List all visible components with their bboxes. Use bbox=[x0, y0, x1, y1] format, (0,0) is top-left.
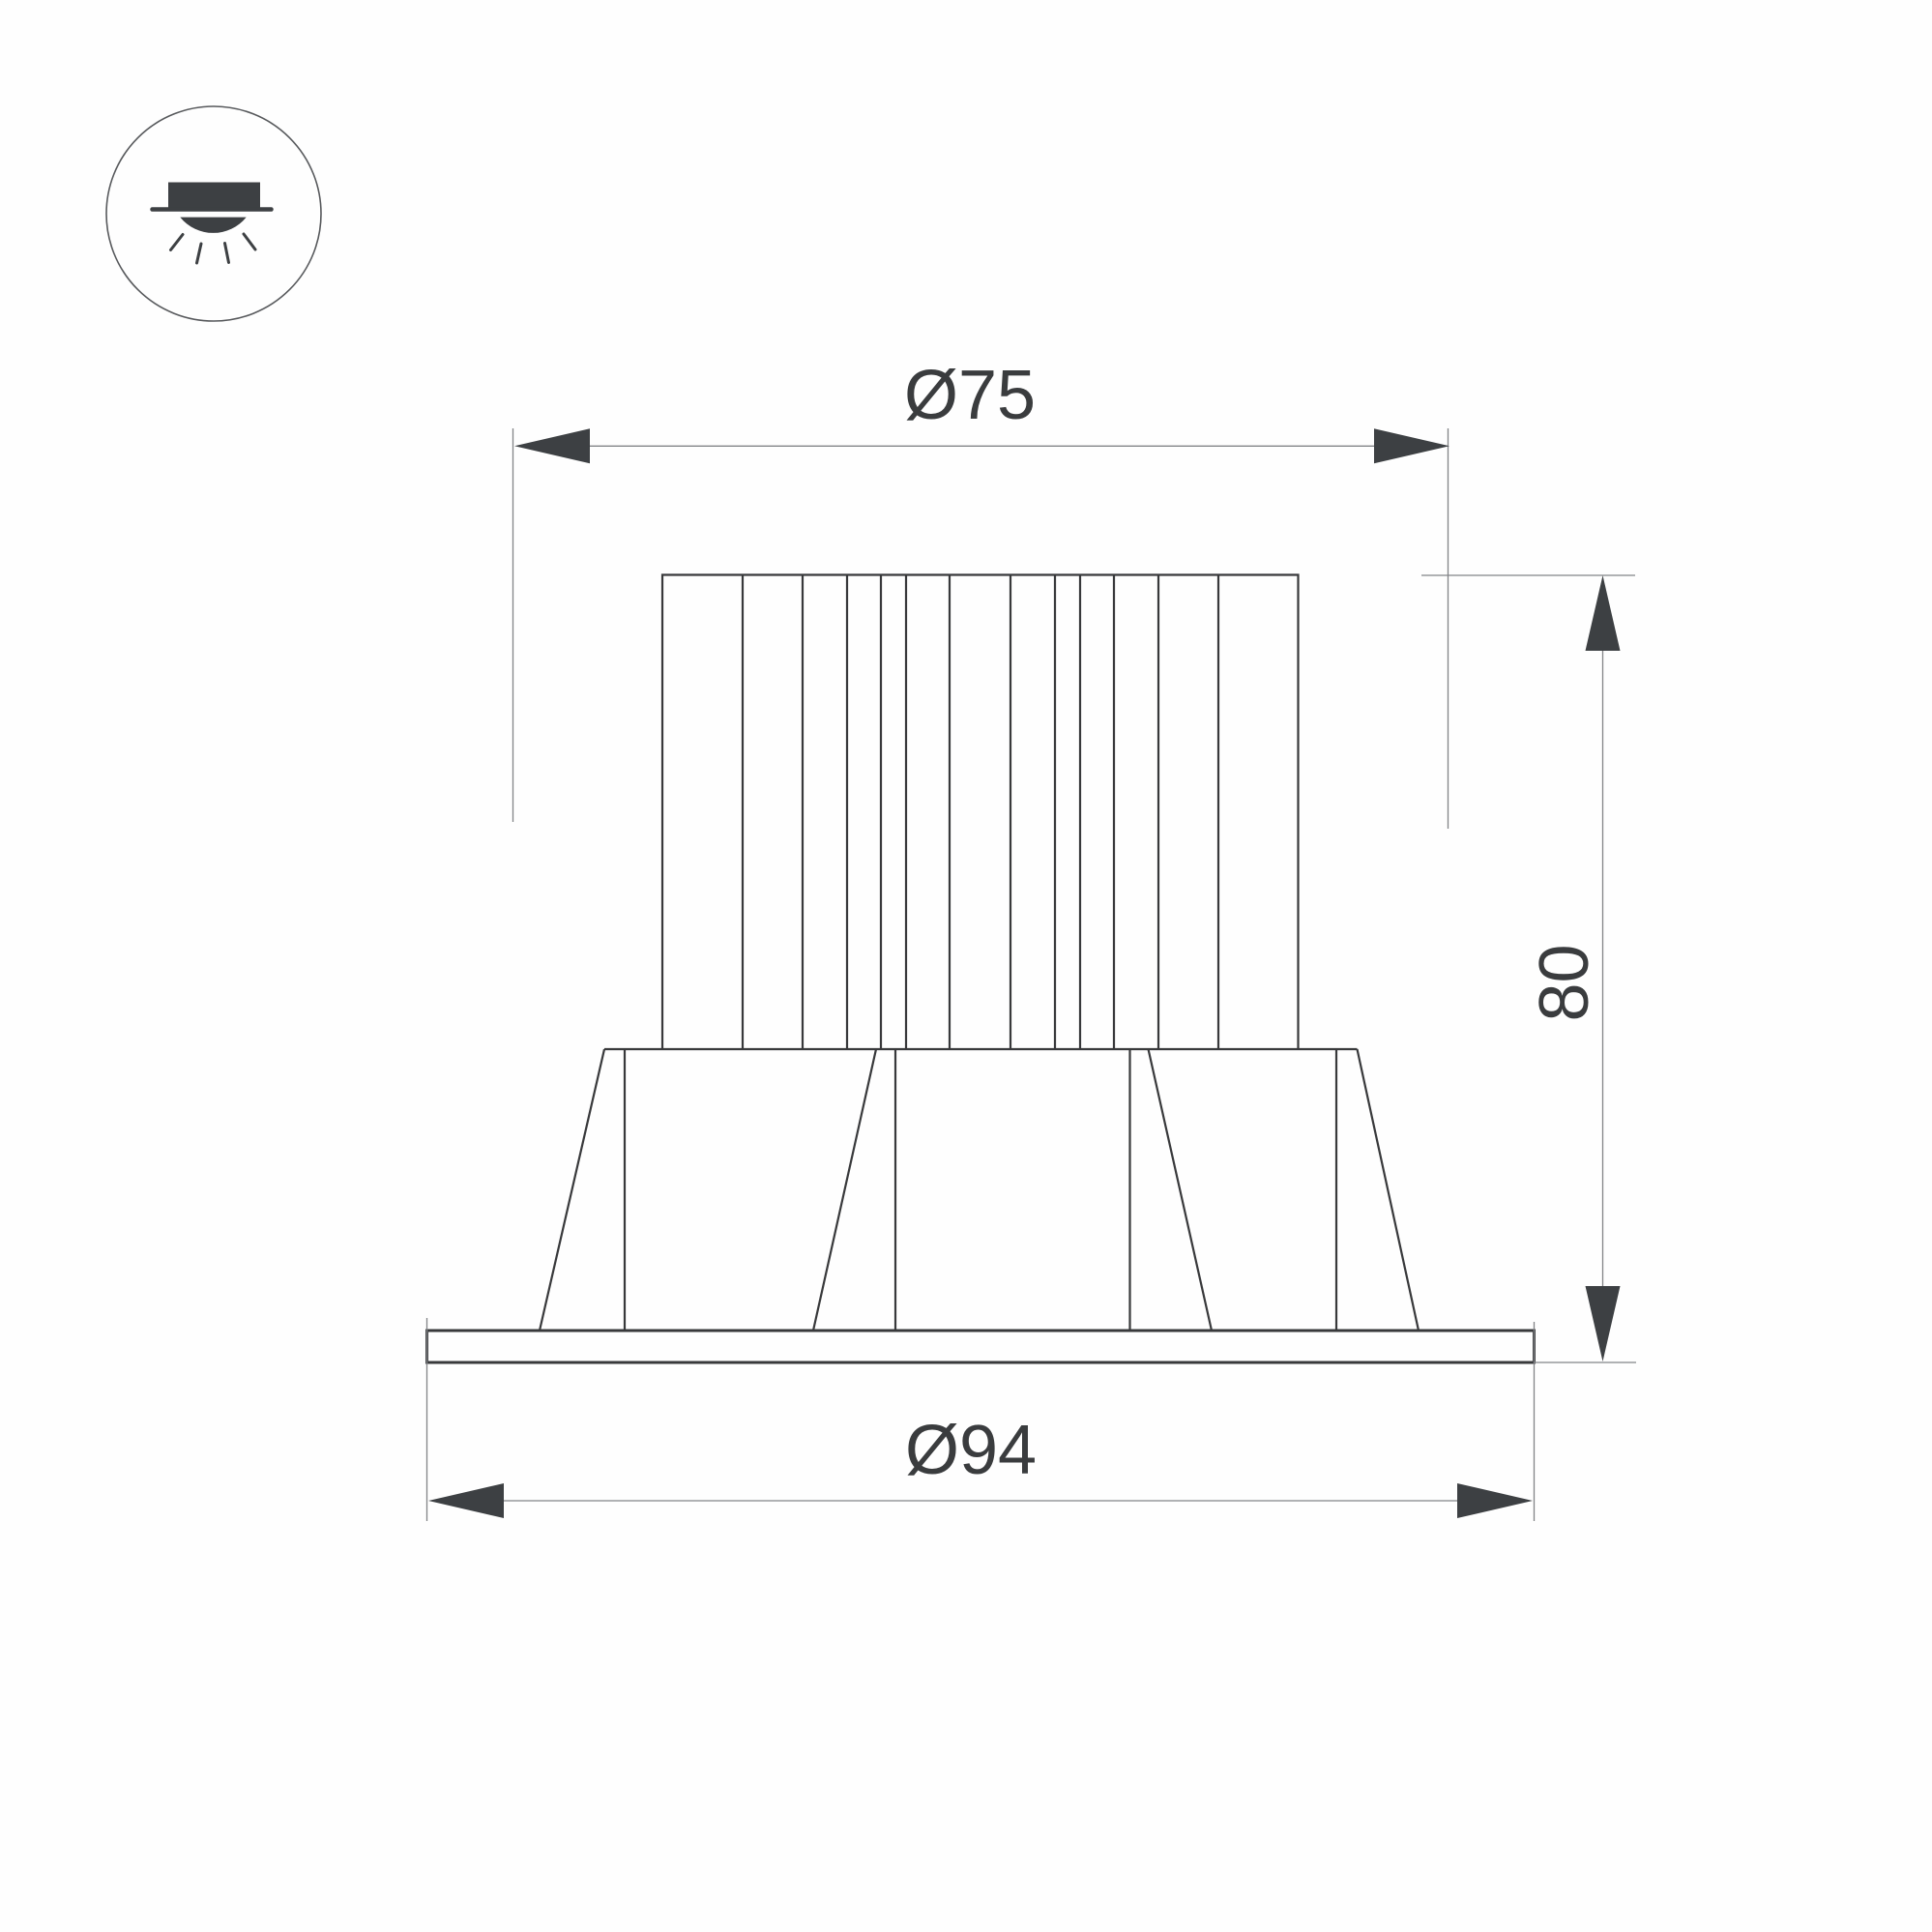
svg-text:Ø94: Ø94 bbox=[905, 1412, 1037, 1489]
svg-text:80: 80 bbox=[1526, 944, 1603, 1021]
svg-text:Ø75: Ø75 bbox=[904, 357, 1036, 434]
